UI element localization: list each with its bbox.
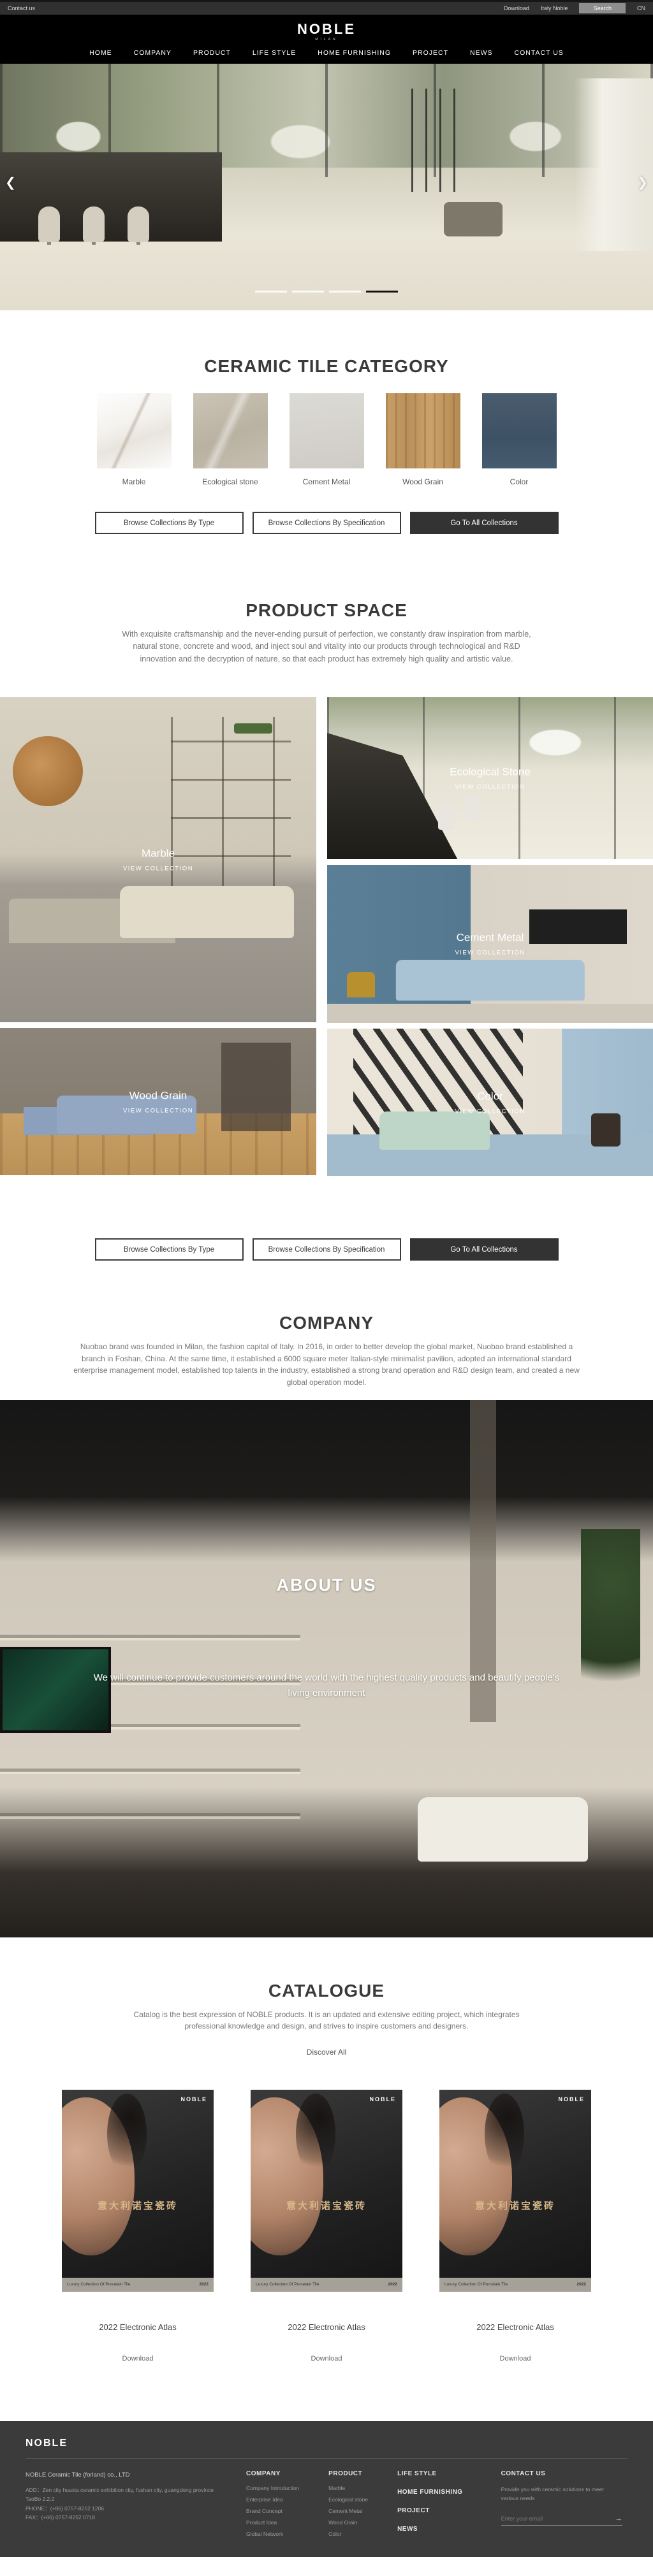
decor-doorway	[221, 1043, 291, 1131]
company-section: COMPANY Nuobao brand was founded in Mila…	[0, 1313, 653, 1388]
nav-company[interactable]: COMPANY	[134, 49, 172, 57]
product-space-grid: Marble VIEW COLLECTION Wood Grain VIEW C…	[0, 697, 653, 1176]
footer-address: ADD：Zen city huaxia ceramic exhibition c…	[26, 2486, 217, 2504]
footer-columns: NOBLE Ceramic Tile (forland) co., LTD AD…	[26, 2470, 627, 2544]
carousel-next-icon[interactable]: ❯	[637, 175, 648, 191]
carousel-indicators	[0, 291, 653, 293]
about-us-banner[interactable]: ABOUT US We will continue to provide cus…	[0, 1400, 653, 1937]
space-tile-name: Ecological Stone	[327, 766, 653, 779]
decor-chair	[347, 972, 375, 997]
decor-hero-pouf	[444, 202, 503, 236]
footer-link-brand-concept[interactable]: Brand Concept	[246, 2508, 299, 2514]
catalogue-item-label: 2022 Electronic Atlas	[439, 2322, 591, 2332]
category-item-ecological-stone[interactable]: Ecological stone	[193, 393, 268, 486]
catalogue-description: Catalog is the best expression of NOBLE …	[129, 2009, 524, 2032]
ecological-stone-swatch-image[interactable]	[193, 393, 268, 468]
download-link[interactable]: Download	[504, 5, 529, 11]
category-label: Ecological stone	[193, 477, 268, 486]
footer-link-color[interactable]: Color	[328, 2531, 368, 2537]
footer-company-name: NOBLE Ceramic Tile (forland) co., LTD	[26, 2470, 217, 2480]
space-tile-label: Wood Grain VIEW COLLECTION	[0, 1089, 316, 1114]
cement-metal-swatch-image[interactable]	[290, 393, 364, 468]
category-item-wood-grain[interactable]: Wood Grain	[386, 393, 460, 486]
brand-logo-sub: MILAN	[315, 38, 337, 41]
decor-hero-stool	[128, 206, 149, 242]
submit-arrow-icon[interactable]: →	[615, 2515, 622, 2522]
footer-link-marble[interactable]: Marble	[328, 2485, 368, 2491]
footer-col-company: COMPANY Company Introduction Enterprise …	[246, 2470, 299, 2544]
topbar-right: Download Italy Noble Search CN	[504, 3, 645, 13]
footer-col-links: LIFE STYLE HOME FURNISHING PROJECT NEWS	[397, 2470, 463, 2544]
footer-link-global-network[interactable]: Global Network	[246, 2531, 299, 2537]
cover-bottom-strip: Luxury Collection Of Porcelain Tile 2022	[62, 2278, 214, 2292]
all-collections-button[interactable]: Go To All Collections	[410, 512, 559, 534]
footer-logo: NOBLE	[26, 2438, 627, 2449]
footer-col-contact: CONTACT US Provide you with ceramic solu…	[501, 2470, 622, 2544]
company-title: COMPANY	[0, 1313, 653, 1333]
category-title: CERAMIC TILE CATEGORY	[0, 356, 653, 377]
color-swatch-image[interactable]	[482, 393, 557, 468]
browse-by-type-button[interactable]: Browse Collections By Type	[95, 1238, 244, 1261]
language-switch[interactable]: CN	[637, 5, 645, 11]
category-item-marble[interactable]: Marble	[97, 393, 172, 486]
decor-sofa	[395, 960, 584, 1001]
footer-link-company-introduction[interactable]: Company Introduction	[246, 2485, 299, 2491]
footer-link-project[interactable]: PROJECT	[397, 2507, 463, 2514]
search-button[interactable]: Search	[579, 3, 626, 13]
decor-model-hair	[485, 2094, 524, 2174]
catalogue-cover-image[interactable]: NOBLE 意大利诺宝瓷砖 Luxury Collection Of Porce…	[439, 2090, 591, 2292]
view-collection-link[interactable]: VIEW COLLECTION	[0, 865, 316, 872]
decor-chair	[591, 1113, 620, 1147]
wood-grain-swatch-image[interactable]	[386, 393, 460, 468]
carousel-prev-icon[interactable]: ❮	[5, 175, 16, 191]
browse-by-spec-button[interactable]: Browse Collections By Specification	[253, 1238, 401, 1261]
view-collection-link[interactable]: VIEW COLLECTION	[327, 784, 653, 791]
carousel-indicator[interactable]	[329, 291, 361, 293]
nav-home[interactable]: HOME	[89, 49, 112, 57]
cover-strip-year: 2022	[200, 2282, 209, 2287]
nav-contact-us[interactable]: CONTACT US	[515, 49, 564, 57]
site-footer: NOBLE NOBLE Ceramic Tile (forland) co., …	[0, 2421, 653, 2557]
footer-link-cement-metal[interactable]: Cement Metal	[328, 2508, 368, 2514]
catalogue-card: NOBLE 意大利诺宝瓷砖 Luxury Collection Of Porce…	[251, 2090, 402, 2364]
browse-by-type-button[interactable]: Browse Collections By Type	[95, 512, 244, 534]
product-space-description: With exquisite craftsmanship and the nev…	[116, 628, 537, 665]
cover-brand-logo: NOBLE	[559, 2096, 585, 2102]
category-item-color[interactable]: Color	[482, 393, 557, 486]
carousel-indicator-active[interactable]	[366, 291, 398, 293]
space-tile-label: Ecological Stone VIEW COLLECTION	[327, 766, 653, 791]
carousel-indicator[interactable]	[292, 291, 324, 293]
footer-col-title: PRODUCT	[328, 2470, 368, 2477]
decor-plant	[234, 723, 272, 734]
cover-bottom-strip: Luxury Collection Of Porcelain Tile 2022	[439, 2278, 591, 2292]
catalogue-card: NOBLE 意大利诺宝瓷砖 Luxury Collection Of Porce…	[62, 2090, 214, 2364]
space-tile-marble[interactable]: Marble VIEW COLLECTION	[0, 697, 316, 1022]
cover-strip-year: 2022	[577, 2282, 586, 2287]
cover-cn-title: 意大利诺宝瓷砖	[62, 2199, 214, 2212]
decor-model-hair	[296, 2094, 335, 2174]
catalogue-covers: NOBLE 意大利诺宝瓷砖 Luxury Collection Of Porce…	[0, 2090, 653, 2364]
collection-buttons-row: Browse Collections By Type Browse Collec…	[0, 1238, 653, 1261]
decor-hero-island	[0, 152, 222, 241]
brand-logo[interactable]: NOBLE	[297, 22, 356, 36]
view-collection-link[interactable]: VIEW COLLECTION	[327, 1108, 653, 1115]
footer-link-home-furnishing[interactable]: HOME FURNISHING	[397, 2489, 463, 2496]
footer-phone: PHONE：(+86) 0757-8252 1206	[26, 2504, 217, 2513]
footer-contact-blurb: Provide you with ceramic solutions to me…	[501, 2485, 622, 2503]
view-collection-link[interactable]: VIEW COLLECTION	[0, 1107, 316, 1114]
space-tile-cement-metal[interactable]: Cement Metal VIEW COLLECTION	[327, 865, 653, 1023]
space-tile-label: Marble VIEW COLLECTION	[0, 848, 316, 872]
space-tile-wood-grain[interactable]: Wood Grain VIEW COLLECTION	[0, 1028, 316, 1175]
footer-company-info: NOBLE Ceramic Tile (forland) co., LTD AD…	[26, 2470, 217, 2544]
footer-col-product: PRODUCT Marble Ecological stone Cement M…	[328, 2470, 368, 2544]
grid-right-column: Ecological Stone VIEW COLLECTION Cement …	[327, 697, 653, 1176]
space-tile-label: Cement Metal VIEW COLLECTION	[327, 932, 653, 957]
category-label: Color	[482, 477, 557, 486]
newsletter-field: →	[501, 2515, 622, 2526]
hero-carousel: ❮ ❯	[0, 64, 653, 310]
decor-stool	[438, 804, 455, 830]
cover-brand-logo: NOBLE	[370, 2096, 397, 2102]
category-label: Wood Grain	[386, 477, 460, 486]
catalogue-download-link[interactable]: Download	[311, 2355, 342, 2363]
discover-all-link[interactable]: Discover All	[0, 2048, 653, 2057]
decor-wall-art	[13, 736, 83, 806]
all-collections-button[interactable]: Go To All Collections	[410, 1238, 559, 1261]
category-label: Marble	[97, 477, 172, 486]
decor-floor	[327, 1004, 653, 1023]
catalogue-item-label: 2022 Electronic Atlas	[251, 2322, 402, 2332]
decor-sofa	[120, 886, 294, 938]
space-tile-name: Wood Grain	[0, 1089, 316, 1102]
nav-home-furnishing[interactable]: HOME FURNISHING	[318, 49, 391, 57]
footer-link-life-style[interactable]: LIFE STYLE	[397, 2470, 463, 2477]
footer-link-wood-grain[interactable]: Wood Grain	[328, 2519, 368, 2526]
nav-news[interactable]: NEWS	[470, 49, 493, 57]
collection-buttons-row: Browse Collections By Type Browse Collec…	[0, 512, 653, 534]
decor-sofa	[418, 1797, 587, 1862]
cover-bottom-strip: Luxury Collection Of Porcelain Tile 2022	[251, 2278, 402, 2292]
marble-swatch-image[interactable]	[97, 393, 172, 468]
catalogue-cover-image[interactable]: NOBLE 意大利诺宝瓷砖 Luxury Collection Of Porce…	[62, 2090, 214, 2292]
cover-cn-title: 意大利诺宝瓷砖	[439, 2199, 591, 2212]
space-tile-name: Cement Metal	[327, 932, 653, 944]
decor-hero-stool	[38, 206, 60, 242]
email-input[interactable]	[501, 2515, 615, 2522]
about-overlay: ABOUT US We will continue to provide cus…	[0, 1400, 653, 1701]
italy-noble-link[interactable]: Italy Noble	[541, 5, 568, 11]
category-section: CERAMIC TILE CATEGORY Marble Ecological …	[0, 310, 653, 534]
catalogue-download-link[interactable]: Download	[122, 2355, 154, 2363]
cover-strip-text: Luxury Collection Of Porcelain Tile	[67, 2282, 130, 2287]
footer-fax: FAX：(+86) 0757-8252 0718	[26, 2513, 217, 2522]
decor-stool	[464, 795, 481, 820]
decor-model-hair	[107, 2094, 147, 2174]
space-tile-label: Color VIEW COLLECTION	[327, 1090, 653, 1115]
space-tile-name: Marble	[0, 848, 316, 860]
catalogue-download-link[interactable]: Download	[500, 2355, 531, 2363]
footer-link-news[interactable]: NEWS	[397, 2526, 463, 2533]
nav-life-style[interactable]: LIFE STYLE	[253, 49, 296, 57]
footer-link-ecological-stone[interactable]: Ecological stone	[328, 2496, 368, 2503]
catalogue-item-label: 2022 Electronic Atlas	[62, 2322, 214, 2332]
cover-strip-text: Luxury Collection Of Porcelain Tile	[444, 2282, 508, 2287]
contact-us-link[interactable]: Contact us	[8, 5, 35, 11]
cover-strip-year: 2022	[388, 2282, 397, 2287]
view-collection-link[interactable]: VIEW COLLECTION	[327, 950, 653, 957]
category-swatches: Marble Ecological stone Cement Metal Woo…	[0, 393, 653, 486]
decor-hero-stool	[83, 206, 105, 242]
decor-sofa	[379, 1111, 490, 1150]
space-tile-ecological-stone[interactable]: Ecological Stone VIEW COLLECTION	[327, 697, 653, 859]
catalogue-title: CATALOGUE	[0, 1981, 653, 2001]
catalogue-card: NOBLE 意大利诺宝瓷砖 Luxury Collection Of Porce…	[439, 2090, 591, 2364]
footer-link-product-idea[interactable]: Product Idea	[246, 2519, 299, 2526]
space-tile-name: Color	[327, 1090, 653, 1103]
main-nav: HOME COMPANY PRODUCT LIFE STYLE HOME FUR…	[89, 49, 564, 57]
site-header: NOBLE MILAN HOME COMPANY PRODUCT LIFE ST…	[0, 15, 653, 64]
nav-project[interactable]: PROJECT	[413, 49, 448, 57]
decor-hero-curtain	[575, 78, 653, 251]
catalogue-section: CATALOGUE Catalog is the best expression…	[0, 1981, 653, 2364]
footer-divider	[26, 2458, 627, 2459]
category-item-cement-metal[interactable]: Cement Metal	[290, 393, 364, 486]
product-space-section: PRODUCT SPACE With exquisite craftsmansh…	[0, 600, 653, 1261]
space-tile-color[interactable]: Color VIEW COLLECTION	[327, 1029, 653, 1176]
product-space-title: PRODUCT SPACE	[0, 600, 653, 621]
footer-link-enterprise-idea[interactable]: Enterprise Idea	[246, 2496, 299, 2503]
cover-cn-title: 意大利诺宝瓷砖	[251, 2199, 402, 2212]
footer-col-title: CONTACT US	[501, 2470, 622, 2477]
about-title: ABOUT US	[0, 1575, 653, 1595]
carousel-indicator[interactable]	[255, 291, 287, 293]
cover-brand-logo: NOBLE	[181, 2096, 208, 2102]
catalogue-cover-image[interactable]: NOBLE 意大利诺宝瓷砖 Luxury Collection Of Porce…	[251, 2090, 402, 2292]
nav-product[interactable]: PRODUCT	[193, 49, 231, 57]
cover-strip-text: Luxury Collection Of Porcelain Tile	[256, 2282, 319, 2287]
footer-col-title: COMPANY	[246, 2470, 299, 2477]
grid-left-column: Marble VIEW COLLECTION Wood Grain VIEW C…	[0, 697, 316, 1176]
about-subtitle: We will continue to provide customers ar…	[84, 1670, 569, 1701]
top-utility-bar: Contact us Download Italy Noble Search C…	[0, 0, 653, 15]
company-description: Nuobao brand was founded in Milan, the f…	[71, 1341, 582, 1388]
category-label: Cement Metal	[290, 477, 364, 486]
decor-hero-rack	[411, 89, 457, 192]
browse-by-spec-button[interactable]: Browse Collections By Specification	[253, 512, 401, 534]
